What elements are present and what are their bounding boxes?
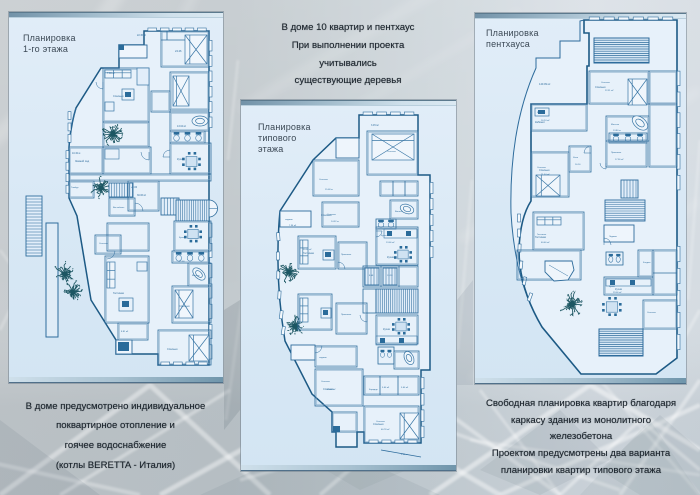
svg-text:Спальня: Спальня (601, 82, 611, 84)
svg-text:17.36 м²: 17.36 м² (615, 158, 624, 161)
svg-text:Прихожая: Прихожая (341, 254, 352, 256)
svg-text:Кабинет: Кабинет (537, 112, 545, 114)
svg-text:14.32 м: 14.32 м (331, 221, 339, 223)
svg-text:Спальня: Спальня (595, 85, 606, 89)
svg-text:Спальня: Спальня (321, 381, 331, 383)
svg-text:29.06 м²: 29.06 м² (613, 291, 622, 294)
svg-text:Кухня: Кухня (177, 157, 185, 161)
svg-text:лоджия: лоджия (285, 219, 293, 221)
svg-text:Гостиная: Гостиная (113, 291, 124, 295)
svg-text:15.08 м: 15.08 м (325, 189, 333, 191)
svg-text:13.80 м: 13.80 м (613, 130, 621, 132)
svg-text:Лоджия: Лоджия (609, 236, 618, 238)
svg-text:Спальня: Спальня (373, 422, 384, 426)
svg-text:24.26: 24.26 (175, 49, 182, 53)
svg-text:8.81 м²: 8.81 м² (121, 330, 128, 333)
svg-text:30.06 м²: 30.06 м² (137, 194, 146, 197)
svg-text:7.36 м²: 7.36 м² (289, 224, 296, 227)
svg-text:Спальня: Спальня (99, 243, 109, 245)
svg-text:60.46 м²: 60.46 м² (541, 241, 550, 244)
svg-text:Кухня: Кухня (381, 235, 388, 237)
svg-text:Спальня: Спальня (323, 387, 334, 391)
svg-text:Кабинет: Кабинет (535, 120, 546, 124)
svg-text:13.04 м²: 13.04 м² (177, 125, 186, 128)
svg-text:Ванная: Ванная (192, 275, 200, 277)
svg-text:Гостиная: Гостиная (303, 251, 314, 255)
svg-text:22.36 м²: 22.36 м² (137, 34, 146, 37)
svg-text:Спальня: Спальня (321, 213, 332, 217)
svg-text:Спальня: Спальня (113, 94, 124, 98)
svg-text:Кухня: Кухня (383, 327, 391, 331)
svg-text:Спальня: Спальня (539, 168, 550, 172)
svg-text:Спальня: Спальня (319, 179, 329, 181)
svg-text:21.34 м²: 21.34 м² (541, 173, 550, 176)
svg-text:Кладов: Кладов (643, 262, 651, 264)
svg-text:Коридор: Коридор (369, 389, 378, 391)
svg-text:16.16: 16.16 (575, 164, 581, 166)
svg-text:Тамбур: Тамбур (71, 187, 79, 189)
svg-text:12.58: 12.58 (179, 261, 185, 263)
svg-text:7.06 м²: 7.06 м² (107, 72, 115, 75)
svg-text:Спальня: Спальня (167, 347, 178, 351)
svg-text:140.09 м²: 140.09 м² (539, 82, 550, 86)
svg-text:Гостиная: Гостиная (535, 235, 546, 239)
svg-text:Спальня: Спальня (179, 304, 190, 308)
svg-text:+0.00: +0.00 (131, 186, 138, 189)
svg-text:3.40 м: 3.40 м (401, 454, 408, 456)
svg-text:Прихожая: Прихожая (341, 314, 352, 316)
svg-text:30.06 м²: 30.06 м² (303, 248, 312, 251)
svg-text:Кухня: Кухня (179, 237, 186, 239)
svg-text:13.06 м²: 13.06 м² (386, 241, 395, 244)
svg-text:3.45 м²: 3.45 м² (371, 124, 379, 127)
svg-text:Кухня: Кухня (387, 255, 395, 259)
svg-text:Ванная: Ванная (395, 211, 403, 213)
svg-text:Холл: Холл (573, 157, 579, 159)
svg-text:46.78 м²: 46.78 м² (381, 428, 390, 431)
svg-text:Прихожая: Прихожая (611, 152, 622, 154)
svg-text:22.31 м²: 22.31 м² (605, 89, 614, 92)
svg-text:Массаж: Массаж (611, 124, 619, 126)
svg-text:10.32 м: 10.32 м (72, 152, 81, 155)
svg-text:5.60 м²: 5.60 м² (382, 386, 389, 389)
svg-text:Спальня: Спальня (647, 312, 657, 314)
svg-text:Зимний сад: Зимний сад (75, 159, 90, 163)
svg-text:лоджия: лоджия (319, 357, 327, 359)
svg-text:Кухня: Кухня (615, 287, 623, 291)
svg-text:13.28: 13.28 (387, 275, 393, 277)
svg-text:Вестибюль: Вестибюль (113, 207, 125, 209)
svg-text:5.60 м²: 5.60 м² (401, 386, 408, 389)
svg-text:Спальня: Спальня (387, 151, 397, 153)
